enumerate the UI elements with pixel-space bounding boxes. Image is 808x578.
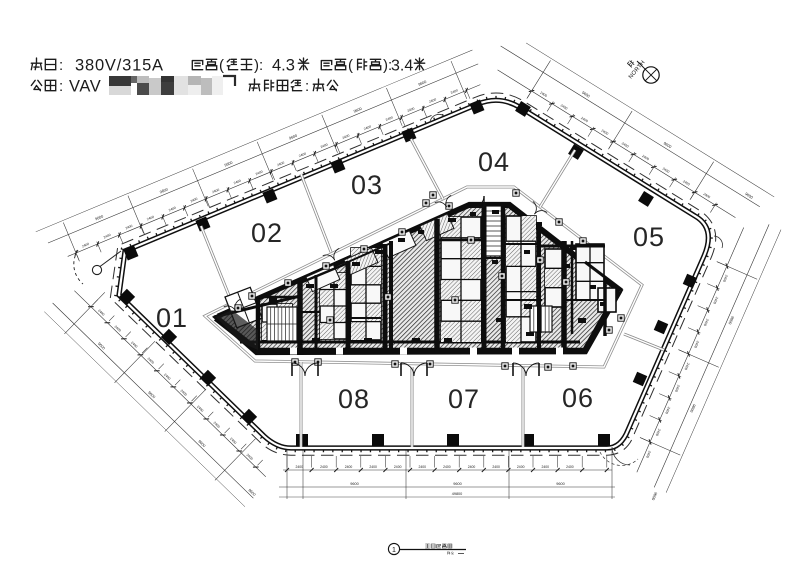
svg-text:2400: 2400 <box>320 465 328 469</box>
svg-text:07: 07 <box>448 384 480 414</box>
svg-text:04: 04 <box>478 147 510 177</box>
svg-text:05: 05 <box>633 222 665 252</box>
svg-text:2400: 2400 <box>296 465 304 469</box>
svg-text:01: 01 <box>156 303 188 333</box>
svg-text::: : <box>59 57 63 74</box>
svg-text:9600: 9600 <box>556 482 564 486</box>
svg-text:(: ( <box>219 57 224 74</box>
svg-text:2400: 2400 <box>443 465 451 469</box>
svg-text:380V/315A: 380V/315A <box>75 57 164 75</box>
svg-text:2400: 2400 <box>517 465 525 469</box>
svg-text:1: 1 <box>392 547 396 554</box>
svg-text:4.3: 4.3 <box>272 57 295 75</box>
svg-text:):: ): <box>254 57 263 74</box>
svg-text:02: 02 <box>251 218 283 248</box>
svg-text:2400: 2400 <box>345 465 353 469</box>
svg-text:2400: 2400 <box>492 465 500 469</box>
svg-text:3.4: 3.4 <box>391 58 413 75</box>
svg-text:2400: 2400 <box>369 465 377 469</box>
svg-text:VAV: VAV <box>69 78 101 96</box>
svg-text:03: 03 <box>351 170 383 200</box>
svg-text:06: 06 <box>562 383 594 413</box>
svg-text:49800: 49800 <box>452 492 463 496</box>
svg-text:2400: 2400 <box>542 465 550 469</box>
svg-text:2400: 2400 <box>419 465 427 469</box>
svg-text:9600: 9600 <box>350 482 358 486</box>
svg-text:2400: 2400 <box>468 465 476 469</box>
svg-text:08: 08 <box>338 384 370 414</box>
svg-text:2400: 2400 <box>394 465 402 469</box>
svg-text:9600: 9600 <box>453 482 461 486</box>
svg-text::: : <box>59 78 63 95</box>
svg-text:(: ( <box>348 57 353 74</box>
svg-text::: : <box>305 78 309 95</box>
svg-text:2400: 2400 <box>566 465 574 469</box>
